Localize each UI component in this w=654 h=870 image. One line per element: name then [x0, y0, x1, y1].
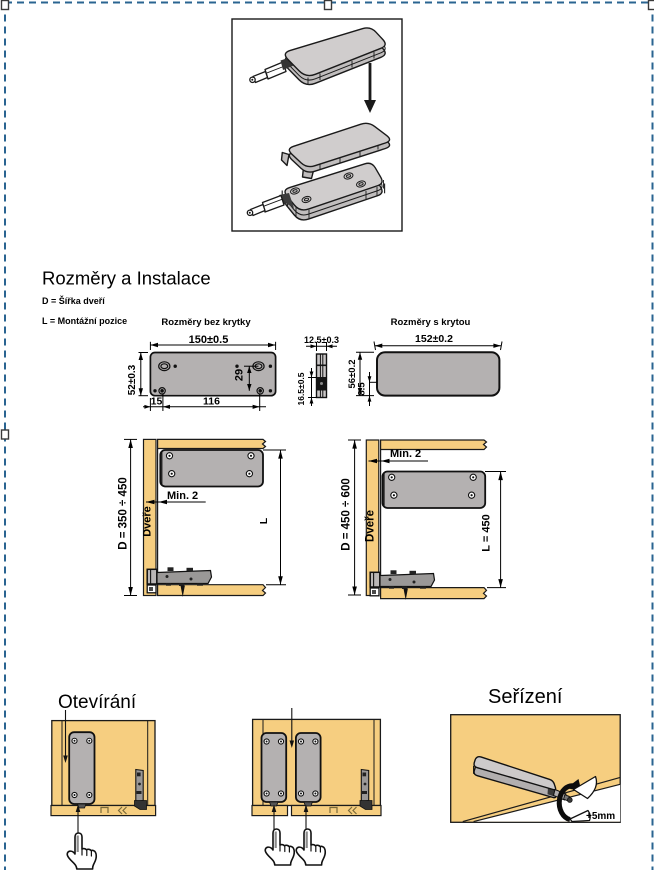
svg-text:D = 350 ÷ 450: D = 350 ÷ 450	[118, 477, 130, 550]
svg-text:Rozměry bez krytky: Rozměry bez krytky	[161, 317, 251, 328]
svg-text:16.5±0.5: 16.5±0.5	[296, 372, 306, 405]
svg-text:Rozměry s krytou: Rozměry s krytou	[391, 317, 471, 328]
svg-text:Dveře: Dveře	[365, 510, 377, 542]
svg-text:12.5±0.3: 12.5±0.3	[304, 335, 339, 345]
svg-text:Seřízení: Seřízení	[488, 686, 563, 708]
svg-text:Otevírání: Otevírání	[58, 692, 137, 713]
svg-text:Min. 2: Min. 2	[167, 490, 198, 502]
svg-text:8.5: 8.5	[357, 382, 368, 396]
svg-text:L = Montážní pozice: L = Montážní pozice	[42, 316, 127, 326]
svg-text:Rozměry a Instalace: Rozměry a Instalace	[42, 268, 211, 289]
svg-text:L: L	[258, 517, 270, 524]
svg-text:L = 450: L = 450	[481, 514, 493, 551]
svg-text:+5mm: +5mm	[586, 811, 615, 822]
svg-text:152±0.2: 152±0.2	[415, 333, 453, 345]
svg-text:116: 116	[203, 396, 220, 408]
svg-text:Min. 2: Min. 2	[390, 448, 421, 460]
svg-text:D = 450 ÷ 600: D = 450 ÷ 600	[341, 478, 353, 551]
svg-text:52±0.3: 52±0.3	[127, 364, 138, 395]
svg-text:Dveře: Dveře	[142, 506, 154, 537]
svg-text:150±0.5: 150±0.5	[189, 334, 229, 346]
svg-text:29: 29	[234, 369, 246, 381]
svg-text:D = Šířka dveří: D = Šířka dveří	[42, 295, 105, 306]
svg-text:15: 15	[151, 396, 163, 408]
